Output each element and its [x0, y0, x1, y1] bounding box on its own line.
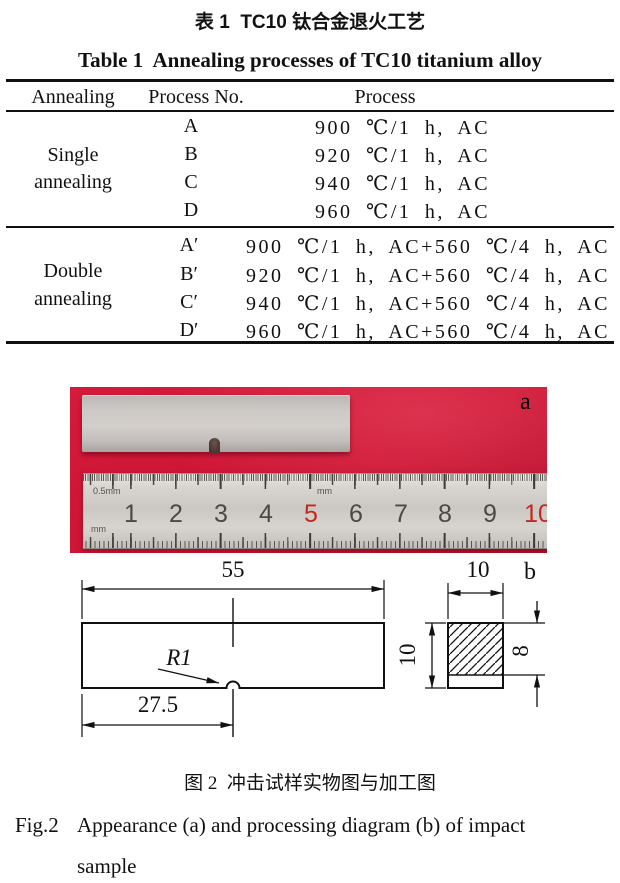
processing-diagram: 55 R1 27.5 10 b 10 8 — [0, 555, 620, 760]
process-no: B — [184, 143, 197, 166]
process-value: 920 ℃/1 h, AC — [315, 143, 490, 168]
ruler-number-3: 3 — [214, 500, 228, 529]
group-label-single-line1: Single — [47, 144, 98, 167]
sample-side-view: 55 R1 27.5 — [82, 557, 384, 737]
dim-notch-offset-label: 27.5 — [138, 692, 178, 717]
table-rule-mid — [6, 226, 614, 228]
ruler-number-2: 2 — [169, 500, 183, 529]
table-title-zh: 表 1 TC10 钛合金退火工艺 — [195, 7, 425, 34]
process-no: A′ — [180, 234, 199, 257]
process-value: 920 ℃/1 h, AC+560 ℃/4 h, AC — [246, 263, 610, 288]
dim-width-label: 10 — [467, 557, 490, 582]
steel-ruler: 0.5mm mm mm 1 2 3 4 5 6 7 8 9 10 — [83, 473, 547, 549]
paper-page: 表 1 TC10 钛合金退火工艺 Table 1 Annealing proce… — [0, 0, 620, 883]
ruler-ticks-top-cm — [83, 474, 547, 489]
sample-cross-section: 10 b 10 8 — [395, 557, 545, 707]
subfigure-label-b: b — [524, 559, 536, 585]
ruler-scale-top-label: 0.5mm — [93, 486, 121, 496]
figure-caption-zh: 图 2 冲击试样实物图与加工图 — [184, 768, 436, 795]
process-no: D′ — [180, 319, 199, 342]
figure-caption-prefix: Fig.2 — [15, 813, 59, 838]
ruler-number-5: 5 — [304, 500, 318, 529]
ruler-number-9: 9 — [483, 500, 497, 529]
process-value: 960 ℃/1 h, AC+560 ℃/4 h, AC — [246, 319, 610, 344]
process-no: D — [184, 199, 198, 222]
ruler-ticks-bottom-cm — [83, 533, 547, 548]
impact-sample-photo: a 0.5mm mm mm 1 2 3 4 5 6 7 8 9 10 — [70, 387, 547, 553]
process-value: 960 ℃/1 h, AC — [315, 199, 490, 224]
table-rule-header — [6, 110, 614, 112]
figure-caption-en-line1: Appearance (a) and processing diagram (b… — [77, 813, 525, 838]
table-title-en: Table 1 Annealing processes of TC10 tita… — [78, 48, 542, 73]
dim-notch-radius-label: R1 — [165, 645, 192, 670]
ruler-number-6: 6 — [349, 500, 363, 529]
group-label-double-line1: Double — [44, 260, 103, 283]
process-value: 940 ℃/1 h, AC — [315, 171, 490, 196]
process-value: 940 ℃/1 h, AC+560 ℃/4 h, AC — [246, 291, 610, 316]
process-no: A — [184, 115, 198, 138]
impact-sample-bar — [82, 395, 350, 452]
group-label-double-line2: annealing — [34, 288, 112, 311]
col-header-process-no: Process No. — [148, 86, 244, 109]
ruler-scale-bottom-label: mm — [91, 524, 106, 534]
process-no: C′ — [180, 291, 198, 314]
process-no: C — [184, 171, 197, 194]
process-value: 900 ℃/1 h, AC+560 ℃/4 h, AC — [246, 234, 610, 259]
ruler-number-7: 7 — [394, 500, 408, 529]
sample-notch — [209, 438, 220, 453]
subfigure-label-a: a — [520, 389, 531, 416]
group-label-single-line2: annealing — [34, 171, 112, 194]
table-rule-top — [6, 79, 614, 82]
col-header-process: Process — [354, 86, 415, 109]
process-no: B′ — [180, 263, 198, 286]
dim-length-label: 55 — [222, 557, 245, 582]
hatched-area — [448, 623, 503, 675]
dim-ligament-label: 8 — [508, 645, 533, 657]
col-header-annealing: Annealing — [31, 86, 114, 109]
ruler-number-4: 4 — [259, 500, 273, 529]
ruler-scale-mid-label: mm — [317, 486, 332, 496]
figure-caption-en-line2: sample — [77, 854, 136, 879]
dim-height-label: 10 — [395, 644, 420, 667]
ruler-number-1: 1 — [124, 500, 138, 529]
process-value: 900 ℃/1 h, AC — [315, 115, 490, 140]
ruler-number-10: 10 — [524, 500, 547, 529]
ruler-number-8: 8 — [438, 500, 452, 529]
